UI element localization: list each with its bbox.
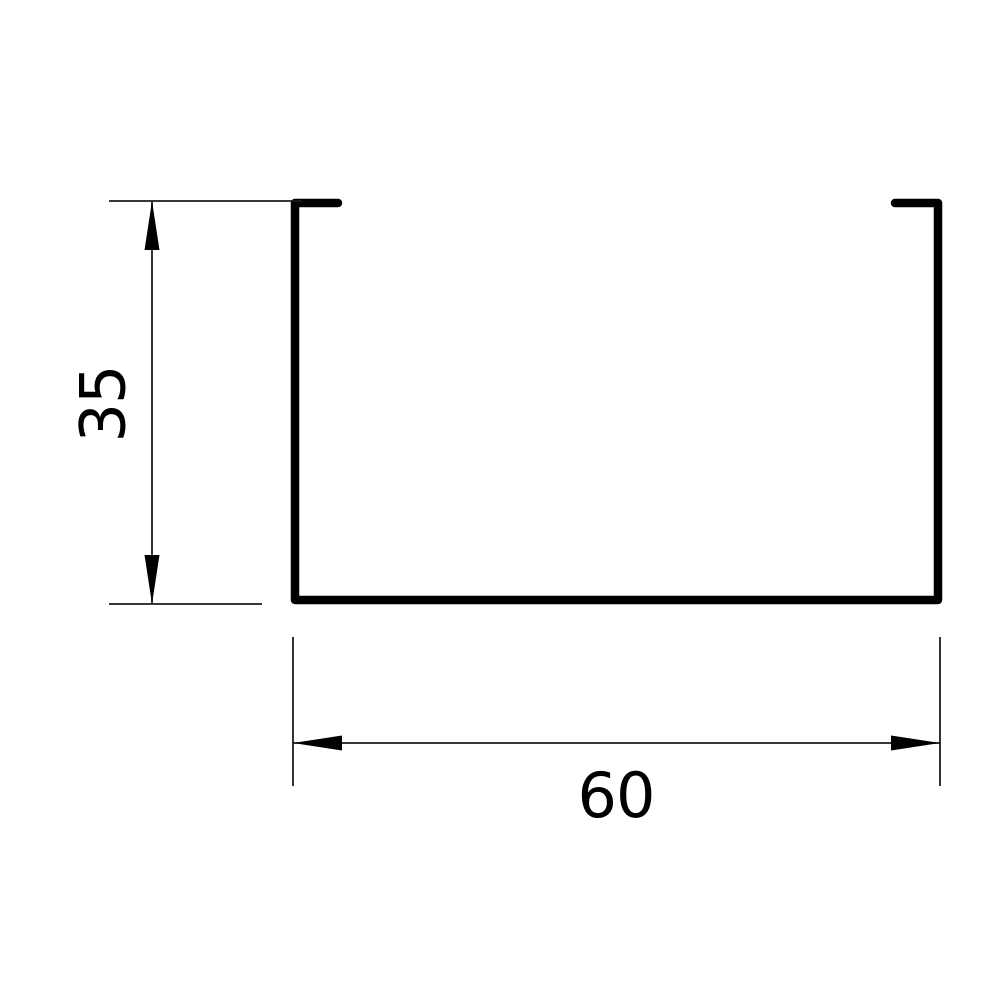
dimension-lines-group [109,201,940,786]
width-dimension-label: 60 [578,759,655,832]
height-arrow-up-icon [145,201,160,250]
height-dimension-label: 35 [67,366,140,443]
height-arrow-down-icon [145,555,160,604]
technical-drawing-canvas: 35 60 [0,0,1000,1000]
dimension-arrows-group [145,201,941,751]
channel-profile-outline [295,203,938,600]
channel-profile-drawing: 35 60 [0,0,1000,1000]
width-arrow-right-icon [891,736,940,751]
width-arrow-left-icon [293,736,342,751]
